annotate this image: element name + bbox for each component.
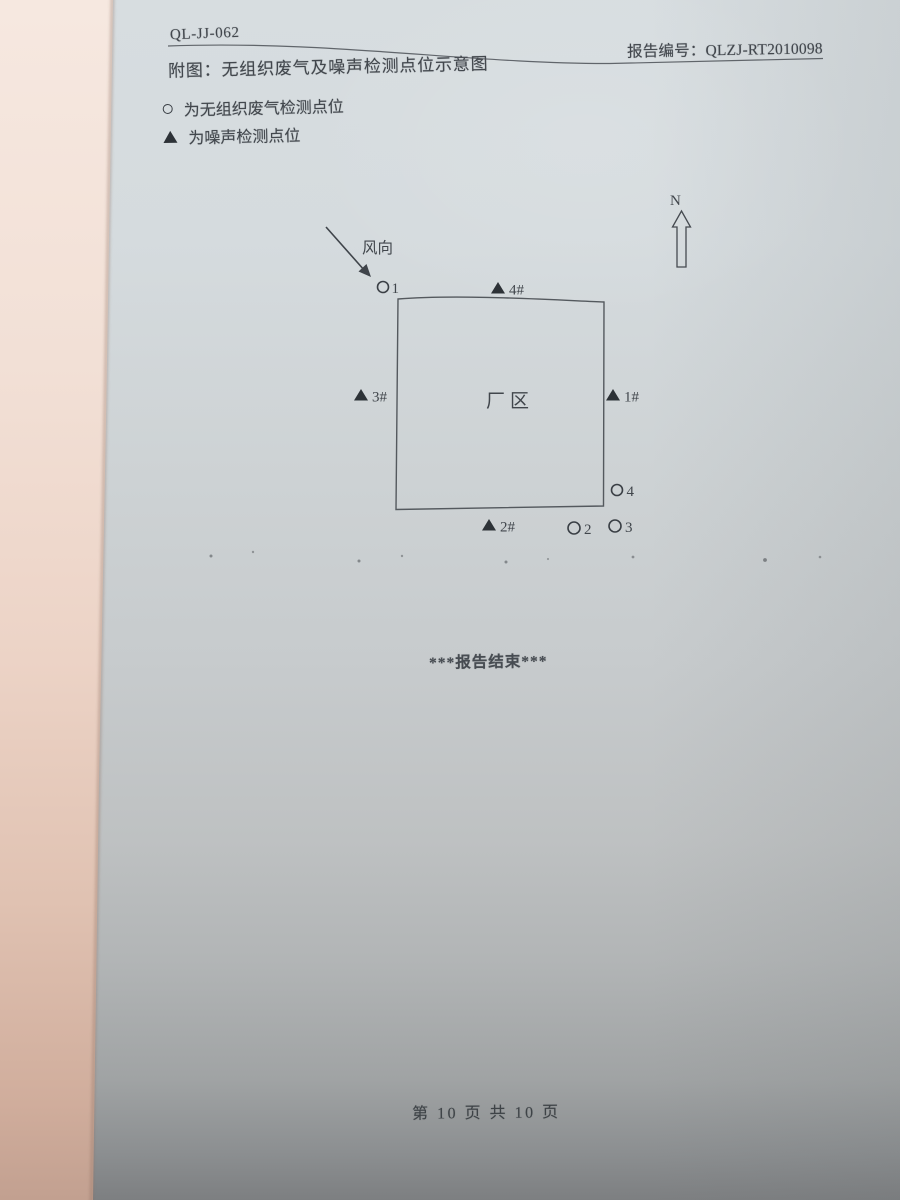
factory-area-label: 厂区 bbox=[486, 391, 534, 412]
noise-point-4-label: 4# bbox=[509, 283, 525, 299]
noise-point-2-label: 2# bbox=[500, 520, 516, 536]
document-page: QL-JJ-062 附图：无组织废气及噪声检测点位示意图 报告编号：QLZJ-R… bbox=[0, 0, 900, 1200]
header-rule bbox=[168, 45, 823, 63]
gas-point-2-icon bbox=[568, 522, 580, 534]
gas-point-3-label: 3 bbox=[625, 520, 633, 536]
noise-point-3-label: 3# bbox=[372, 390, 388, 406]
wind-label: 风向 bbox=[362, 239, 393, 257]
noise-point-1-label: 1# bbox=[624, 390, 640, 406]
page-footer: 第 10 页 共 10 页 bbox=[412, 1098, 561, 1124]
site-diagram: N 风向 厂区 1 4# 3# 1# 4 2# 2 3 bbox=[0, 0, 900, 1200]
gas-point-1-label: 1 bbox=[392, 281, 400, 297]
gas-point-4-label: 4 bbox=[627, 484, 635, 500]
noise-point-4-icon bbox=[491, 282, 505, 294]
report-end-text: ***报告结束*** bbox=[429, 649, 548, 673]
noise-point-1-icon bbox=[606, 389, 620, 401]
gas-point-4-icon bbox=[612, 485, 623, 496]
paper-specks bbox=[210, 551, 822, 564]
gas-point-2-label: 2 bbox=[584, 522, 592, 538]
wind-arrow-icon bbox=[326, 227, 365, 271]
gas-point-3-icon bbox=[609, 520, 621, 532]
gas-point-1-icon bbox=[378, 282, 389, 293]
north-arrow-icon bbox=[673, 211, 691, 267]
noise-point-2-icon bbox=[482, 519, 496, 531]
north-label: N bbox=[670, 193, 681, 209]
noise-point-3-icon bbox=[354, 389, 368, 401]
